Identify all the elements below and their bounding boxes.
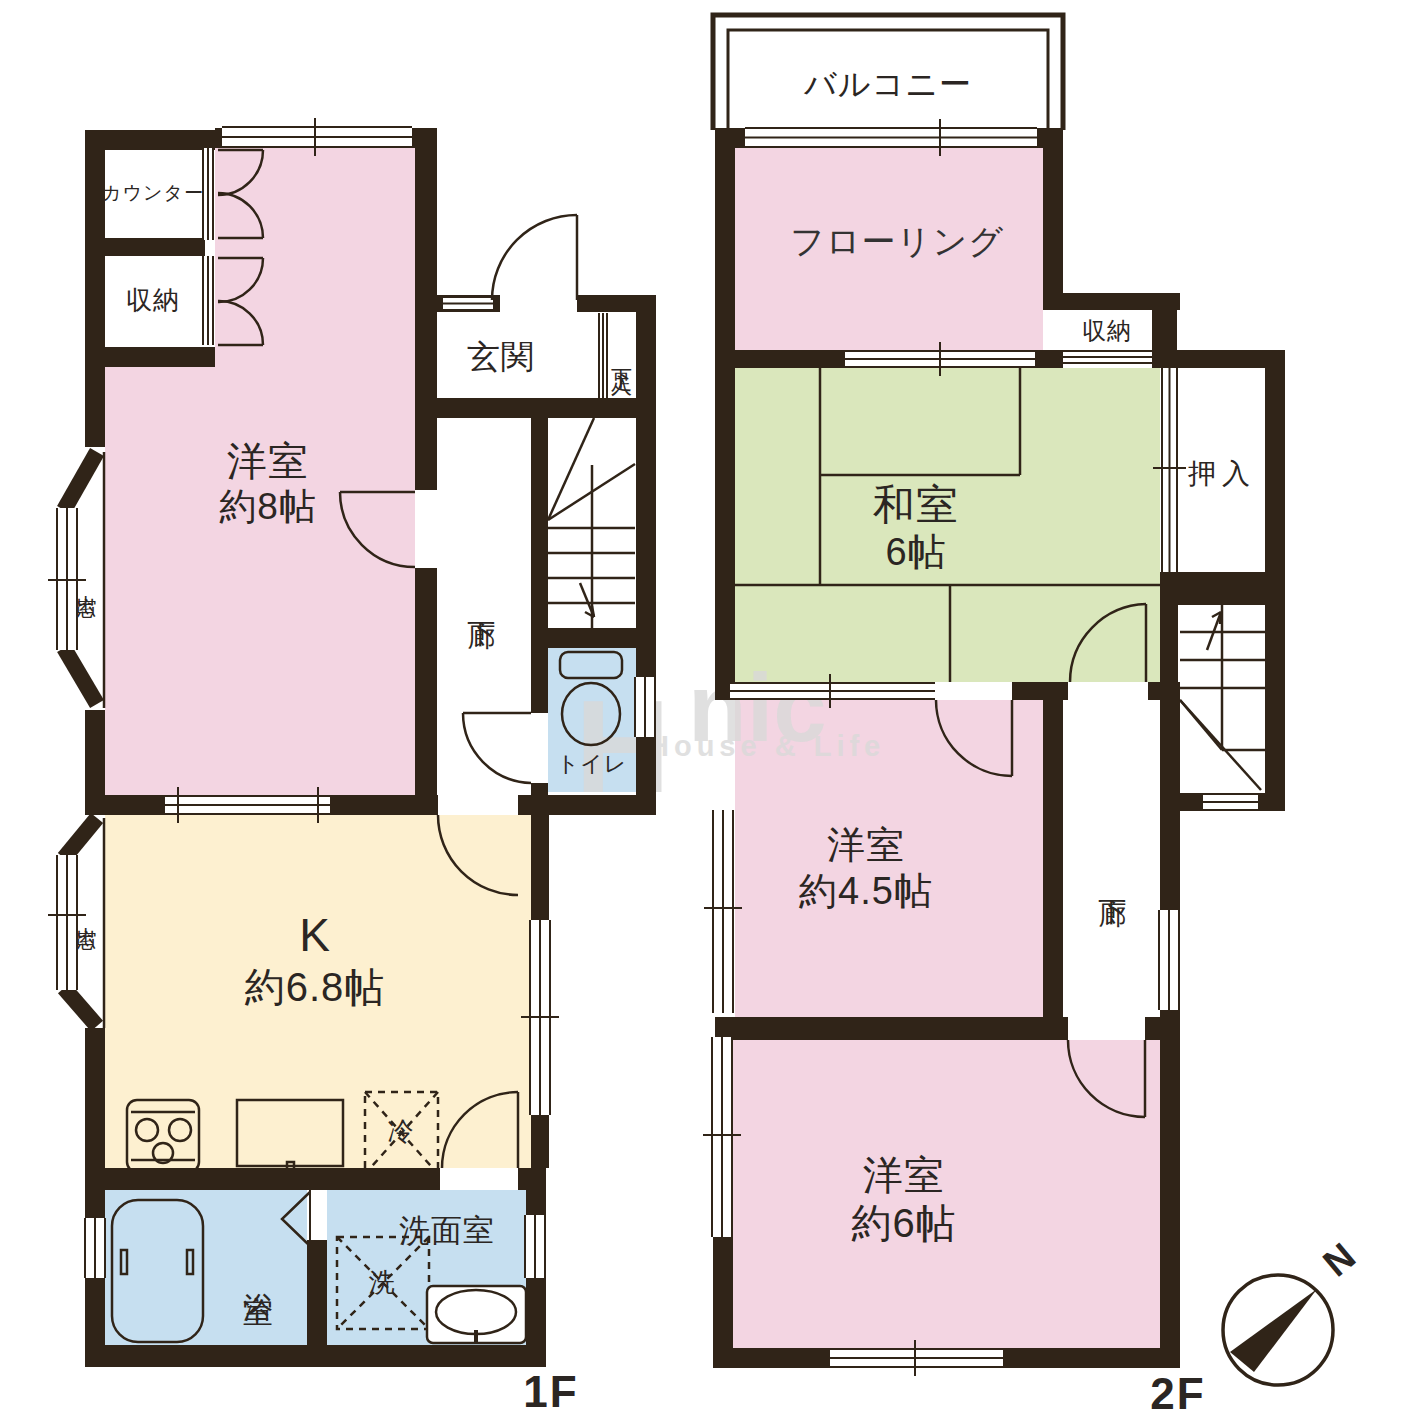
basin-icon xyxy=(427,1286,526,1343)
watermark-tagline: House & Life xyxy=(648,730,885,762)
label-balcony: バルコニー xyxy=(804,65,972,103)
label-western45-size: 約4.5帖 xyxy=(799,869,933,915)
label-washitsu-size: 6帖 xyxy=(873,530,959,576)
label-washitsu: 和室 6帖 xyxy=(873,480,959,576)
label-western8-name: 洋室 xyxy=(219,437,317,485)
label-toilet: トイレ xyxy=(557,751,628,777)
room-bath xyxy=(105,1190,307,1345)
label-western45: 洋室 約4.5帖 xyxy=(799,823,933,914)
label-storage-2f: 収納 xyxy=(1082,317,1132,346)
label-genkan: 玄関 xyxy=(467,337,535,377)
label-flooring: フローリング xyxy=(790,221,1004,262)
label-washroom: 洗面室 xyxy=(399,1212,495,1249)
label-fridge: 冷 xyxy=(388,1116,415,1147)
label-shoe-storage: 下足入 xyxy=(609,353,634,359)
floorplan-image: H nic House & Life xyxy=(0,0,1423,1423)
entrance-door-icon xyxy=(492,215,577,300)
floorplan-drawing: H nic House & Life xyxy=(0,0,1423,1423)
compass-icon xyxy=(1223,1275,1333,1385)
stairs-2f xyxy=(1180,605,1265,790)
label-kitchen-name: K xyxy=(245,908,386,963)
toilet-door-icon xyxy=(463,713,531,783)
label-corridor-2f: 廊下 xyxy=(1095,876,1129,880)
label-washitsu-name: 和室 xyxy=(873,480,959,530)
room-western8-lower xyxy=(105,367,415,795)
label-western6-size: 約6帖 xyxy=(851,1199,956,1247)
label-western45-name: 洋室 xyxy=(799,823,933,869)
label-kitchen-size: 約6.8帖 xyxy=(245,964,386,1012)
label-bay-window-lower: 出窓 xyxy=(74,910,99,914)
label-bath: 浴室 xyxy=(240,1269,276,1273)
label-oshiire: 押入 xyxy=(1188,457,1256,491)
label-floor-2f: 2F xyxy=(1150,1368,1205,1421)
label-western6: 洋室 約6帖 xyxy=(851,1151,956,1247)
label-kitchen: K 約6.8帖 xyxy=(245,908,386,1011)
label-western8-size: 約8帖 xyxy=(219,485,317,529)
label-corridor-1f: 廊下 xyxy=(464,598,498,602)
label-washer: 洗 xyxy=(369,1267,396,1298)
label-floor-1f: 1F xyxy=(523,1366,578,1419)
stairs-1f xyxy=(548,418,635,628)
label-western8: 洋室 約8帖 xyxy=(219,437,317,529)
label-bay-window-upper: 出窓 xyxy=(74,578,99,582)
label-counter: カウンター xyxy=(102,182,204,205)
label-western6-name: 洋室 xyxy=(851,1151,956,1199)
label-storage-1f: 収納 xyxy=(126,285,180,316)
